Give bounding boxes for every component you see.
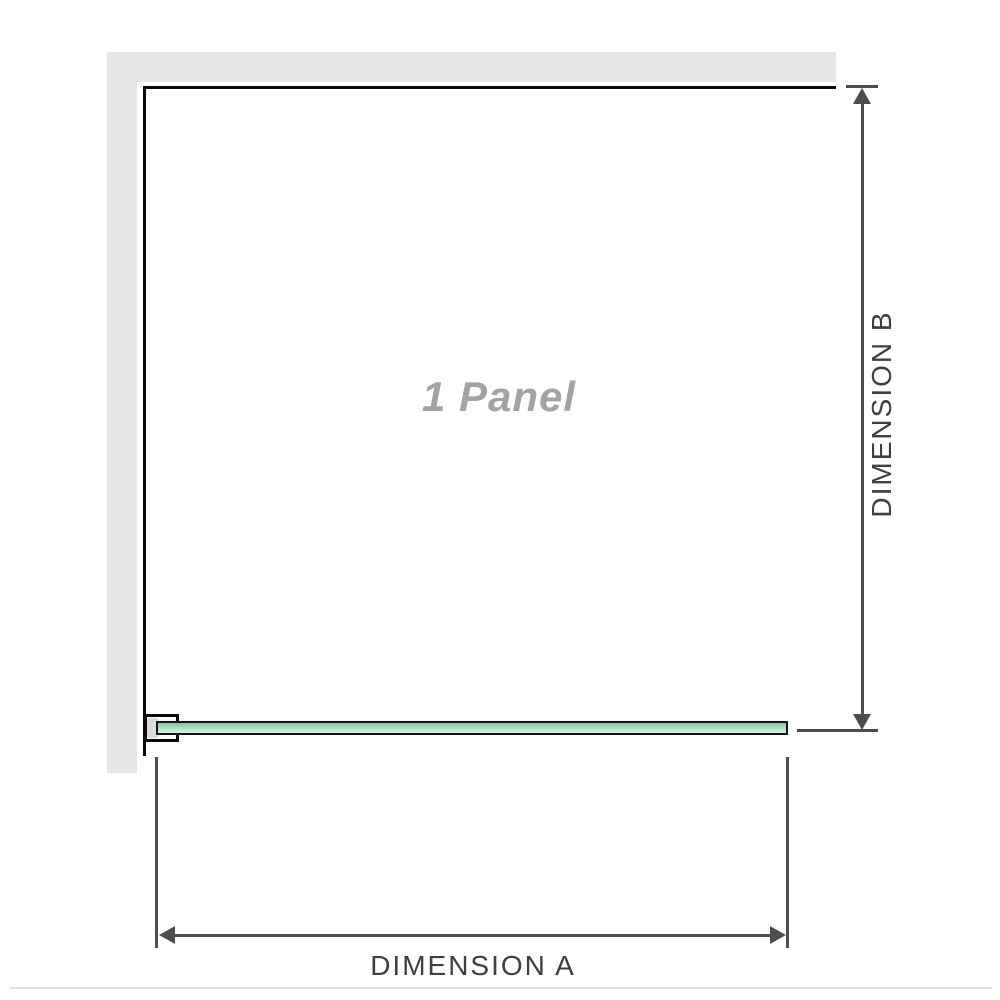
panel-outline-left-edge (143, 86, 146, 756)
dim-b-arrow-down-icon (853, 714, 871, 730)
dimension-a-label: DIMENSION A (157, 950, 789, 982)
dimension-b-label: DIMENSION B (866, 310, 898, 517)
dim-b-line (861, 95, 864, 720)
panel-count-label: 1 Panel (422, 373, 576, 421)
image-bottom-border (10, 987, 992, 989)
dim-a-arrow-left-icon (159, 926, 175, 944)
panel-outline-top-edge (143, 86, 836, 89)
dim-a-extension-line-right (786, 757, 789, 948)
dim-a-extension-line-left (155, 757, 158, 948)
dim-b-arrow-up-icon (853, 88, 871, 104)
dim-a-arrow-right-icon (770, 926, 786, 944)
glass-panel-bar (156, 721, 788, 735)
wall-top-band (107, 52, 836, 82)
dim-a-line (165, 934, 780, 937)
wall-left-band (107, 52, 137, 773)
diagram-canvas: 1 Panel DIMENSION B DIMENSION A (0, 0, 1000, 1000)
